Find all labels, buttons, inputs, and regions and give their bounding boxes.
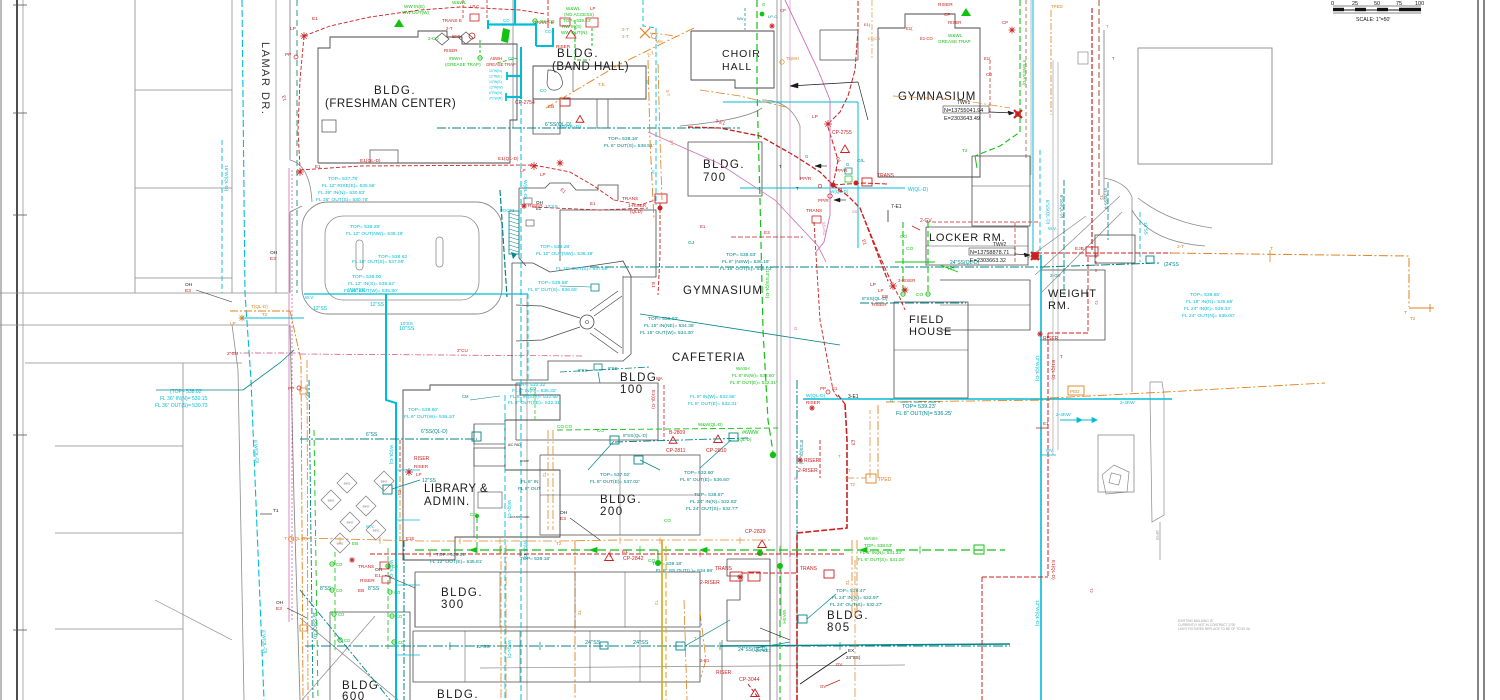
svg-text:(24'SS: (24'SS bbox=[1164, 262, 1180, 268]
svg-text:T2: T2 bbox=[1094, 300, 1099, 305]
svg-text:E1(QL-D): E1(QL-D) bbox=[1051, 360, 1056, 380]
svg-text:E1: E1 bbox=[590, 201, 596, 206]
svg-text:RISER: RISER bbox=[806, 400, 821, 405]
svg-text:BIKE: BIKE bbox=[328, 499, 335, 503]
svg-text:T: T bbox=[848, 468, 851, 473]
svg-text:RISER: RISER bbox=[444, 48, 457, 53]
svg-text:100: 100 bbox=[620, 384, 644, 396]
svg-text:WASH: WASH bbox=[782, 610, 787, 624]
svg-text:RM.: RM. bbox=[1048, 300, 1071, 312]
svg-text:TOP= 539.23': TOP= 539.23' bbox=[902, 404, 936, 410]
svg-text:FL 8" OUT(S)= 536.65': FL 8" OUT(S)= 536.65' bbox=[528, 287, 578, 293]
svg-text:FL 8" OUT(N)= 536.25': FL 8" OUT(N)= 536.25' bbox=[896, 411, 952, 417]
svg-text:E1: E1 bbox=[832, 386, 838, 391]
svg-text:E1: E1 bbox=[622, 549, 628, 555]
svg-text:OH: OH bbox=[270, 250, 278, 256]
svg-text:TOP= 538.29': TOP= 538.29' bbox=[350, 224, 380, 230]
svg-text:100: 100 bbox=[1415, 1, 1424, 7]
svg-text:LIBRARY &: LIBRARY & bbox=[424, 483, 488, 495]
svg-text:10"SS(QL-D): 10"SS(QL-D) bbox=[764, 270, 770, 298]
svg-text:E1: E1 bbox=[397, 490, 402, 496]
svg-text:T1: T1 bbox=[273, 508, 279, 514]
svg-text:FL 10" OUT(S)= 537.69': FL 10" OUT(S)= 537.69' bbox=[352, 259, 404, 265]
svg-text:COMP: COMP bbox=[520, 459, 529, 463]
svg-text:24"SS: 24"SS bbox=[633, 640, 649, 646]
svg-text:RISER: RISER bbox=[556, 44, 571, 49]
svg-text:TOP= 537.78': TOP= 537.78' bbox=[328, 176, 358, 182]
svg-text:18"SS: 18"SS bbox=[1143, 222, 1148, 235]
svg-text:700: 700 bbox=[703, 172, 727, 184]
svg-text:FL 36" OUT(S)= 530.73: FL 36" OUT(S)= 530.73 bbox=[155, 403, 208, 409]
svg-text:WV: WV bbox=[737, 16, 744, 21]
svg-text:FL 8" IN(W)= 532.56': FL 8" IN(W)= 532.56' bbox=[690, 394, 736, 400]
svg-text:WASH: WASH bbox=[864, 536, 878, 541]
svg-text:OH: OH bbox=[560, 510, 568, 516]
svg-text:6"SS(QL-D): 6"SS(QL-D) bbox=[545, 122, 572, 128]
svg-text:CO: CO bbox=[540, 88, 547, 93]
svg-text:T5(MH: T5(MH bbox=[786, 56, 799, 61]
svg-text:TOP= 538.16': TOP= 538.16' bbox=[608, 136, 638, 142]
svg-text:E1(QL-D): E1(QL-D) bbox=[360, 158, 381, 164]
svg-text:25: 25 bbox=[1352, 1, 1358, 7]
svg-text:WV: WV bbox=[1046, 448, 1053, 453]
svg-text:WW IN(E): WW IN(E) bbox=[404, 4, 425, 9]
svg-text:T2: T2 bbox=[1410, 316, 1416, 321]
svg-text:PP/R: PP/R bbox=[800, 176, 812, 182]
svg-text:TOP= 539.58': TOP= 539.58' bbox=[538, 280, 568, 286]
svg-text:E1: E1 bbox=[375, 573, 381, 579]
svg-text:CP: CP bbox=[944, 12, 950, 17]
svg-text:#6WW: #6WW bbox=[742, 430, 759, 436]
svg-text:CO: CO bbox=[916, 292, 923, 298]
svg-text:10"W(S): 10"W(S) bbox=[489, 80, 502, 84]
svg-text:EMH: EMH bbox=[452, 34, 462, 39]
svg-text:FL 15" IN(NE)= 534.36': FL 15" IN(NE)= 534.36' bbox=[644, 323, 695, 329]
svg-text:TOP= 538.03': TOP= 538.03' bbox=[648, 316, 678, 322]
svg-text:CO: CO bbox=[664, 518, 671, 523]
svg-text:24"SS: 24"SS bbox=[585, 640, 601, 646]
svg-text:EX: EX bbox=[848, 648, 854, 653]
svg-text:LP: LP bbox=[870, 282, 876, 288]
svg-text:FH: FH bbox=[948, 266, 955, 272]
svg-text:WA: WA bbox=[656, 376, 663, 381]
svg-text:LP: LP bbox=[590, 6, 595, 11]
svg-text:E1: E1 bbox=[536, 206, 542, 211]
svg-text:600: 600 bbox=[342, 691, 366, 700]
svg-text:FL 36" IN(N)= 530.83': FL 36" IN(N)= 530.83' bbox=[318, 190, 365, 196]
svg-text:TOP= 539.28': TOP= 539.28' bbox=[540, 244, 570, 250]
svg-text:CO: CO bbox=[503, 18, 510, 23]
svg-text:CO: CO bbox=[398, 640, 405, 645]
svg-text:CO: CO bbox=[338, 612, 345, 617]
svg-text:G: G bbox=[805, 154, 808, 159]
svg-text:6"SS: 6"SS bbox=[366, 432, 378, 438]
svg-text:CP-2755: CP-2755 bbox=[832, 130, 852, 136]
svg-text:FL 8" OUT(E)= 532.31': FL 8" OUT(E)= 532.31' bbox=[688, 401, 738, 407]
svg-text:OH: OH bbox=[375, 567, 383, 573]
svg-text:CO CO: CO CO bbox=[557, 424, 572, 429]
svg-text:EB: EB bbox=[352, 541, 358, 546]
svg-text:LP: LP bbox=[540, 172, 546, 177]
svg-text:3-E1: 3-E1 bbox=[848, 394, 859, 400]
svg-text:TPED: TPED bbox=[878, 477, 892, 483]
svg-text:FL 6" OUT(S)= 536.51': FL 6" OUT(S)= 536.51' bbox=[604, 143, 654, 149]
svg-text:E1(CO: E1(CO bbox=[868, 36, 880, 41]
svg-text:8"SS: 8"SS bbox=[368, 586, 380, 592]
svg-text:0: 0 bbox=[1331, 1, 1334, 7]
svg-text:W: W bbox=[651, 170, 656, 174]
svg-text:2-T: 2-T bbox=[1177, 244, 1184, 250]
svg-text:GYMNASIUM: GYMNASIUM bbox=[683, 285, 763, 297]
svg-text:T(QL-D): T(QL-D) bbox=[251, 304, 268, 309]
svg-text:FL 6" OUT(E)= 536.60': FL 6" OUT(E)= 536.60' bbox=[680, 477, 730, 483]
svg-text:W(QL-D): W(QL-D) bbox=[806, 393, 826, 399]
svg-text:FL 12" OUT(NW)= 536.19': FL 12" OUT(NW)= 536.19' bbox=[346, 231, 403, 237]
svg-text:W&WL: W&WL bbox=[566, 6, 581, 11]
svg-text:WASH: WASH bbox=[736, 366, 750, 371]
svg-text:24"SS): 24"SS) bbox=[846, 655, 861, 660]
svg-text:HALL: HALL bbox=[722, 61, 752, 73]
svg-text:TOP= 539.23': TOP= 539.23' bbox=[563, 18, 591, 23]
svg-text:2-E1: 2-E1 bbox=[700, 658, 710, 663]
svg-text:T2: T2 bbox=[850, 482, 856, 487]
svg-text:2-RISER: 2-RISER bbox=[798, 468, 818, 474]
svg-text:12"SS: 12"SS bbox=[370, 302, 385, 308]
svg-text:8"SS(QL-D): 8"SS(QL-D) bbox=[623, 433, 648, 438]
svg-text:CHOIR: CHOIR bbox=[722, 48, 761, 60]
svg-text:CP: CP bbox=[1002, 20, 1008, 25]
svg-text:ADMIN.: ADMIN. bbox=[424, 496, 470, 508]
svg-text:BIKE: BIKE bbox=[373, 529, 380, 533]
svg-text:CO: CO bbox=[597, 428, 604, 433]
svg-text:POC#3: POC#3 bbox=[500, 208, 515, 213]
svg-text:FL 6" OUT(W)= 536.10': FL 6" OUT(W)= 536.10' bbox=[404, 414, 455, 420]
svg-text:12"SS: 12"SS bbox=[313, 306, 328, 312]
svg-text:TRANS: TRANS bbox=[715, 566, 733, 572]
svg-text:PP: PP bbox=[820, 386, 826, 391]
svg-text:T: T bbox=[1060, 354, 1063, 359]
svg-text:BLDG.: BLDG. bbox=[827, 610, 869, 622]
svg-text:#5WH: #5WH bbox=[449, 56, 462, 61]
svg-text:E3: E3 bbox=[764, 230, 770, 235]
svg-text:CO: CO bbox=[344, 638, 351, 643]
svg-text:PP: PP bbox=[288, 386, 294, 392]
svg-text:G: G bbox=[794, 476, 798, 481]
svg-text:FL 18" IN(N)= 535.65': FL 18" IN(N)= 535.65' bbox=[1186, 299, 1233, 305]
svg-text:LP: LP bbox=[812, 114, 818, 120]
svg-text:FL 8" OUT(E)= 532.31': FL 8" OUT(E)= 532.31' bbox=[730, 380, 777, 385]
svg-text:W: W bbox=[645, 80, 650, 84]
svg-text:8'SS: 8'SS bbox=[578, 368, 588, 373]
svg-text:7-E1: 7-E1 bbox=[891, 204, 902, 210]
svg-text:FL 12" OUT(W)= 535.80': FL 12" OUT(W)= 535.80' bbox=[344, 288, 398, 294]
svg-text:CM: CM bbox=[462, 394, 469, 399]
svg-text:TRANS: TRANS bbox=[877, 173, 895, 179]
svg-text:T2: T2 bbox=[1099, 195, 1104, 200]
svg-text:BLDG.: BLDG. bbox=[374, 85, 416, 97]
svg-text:3-RISER: 3-RISER bbox=[898, 278, 915, 283]
svg-text:W.V.: W.V. bbox=[305, 295, 314, 300]
svg-text:TRANS: TRANS bbox=[800, 566, 818, 572]
svg-text:FL 6" IN: FL 6" IN bbox=[521, 479, 539, 485]
svg-text:50: 50 bbox=[1374, 1, 1380, 7]
svg-text:6"FW(N): 6"FW(N) bbox=[489, 91, 502, 95]
svg-text:GV: GV bbox=[836, 662, 842, 667]
svg-text:EJB: EJB bbox=[1075, 246, 1084, 252]
svg-text:FL 12" OUT(NW)= 536.19': FL 12" OUT(NW)= 536.19' bbox=[536, 251, 593, 257]
svg-text:BIKE: BIKE bbox=[344, 482, 351, 486]
svg-text:LP: LP bbox=[520, 168, 526, 173]
svg-text:E1(: E1( bbox=[906, 26, 913, 31]
svg-text:G: G bbox=[794, 326, 798, 331]
svg-text:FIELD: FIELD bbox=[909, 314, 944, 326]
svg-text:CO: CO bbox=[396, 614, 403, 619]
svg-text:FL 8" OUT: FL 8" OUT bbox=[518, 486, 541, 492]
svg-text:E1(QL-D): E1(QL-D) bbox=[1051, 560, 1056, 580]
svg-text:CAFETERIA: CAFETERIA bbox=[672, 352, 746, 364]
svg-text:CP-2754: CP-2754 bbox=[515, 100, 535, 106]
svg-text:12"W(QL-D): 12"W(QL-D) bbox=[1034, 355, 1040, 382]
svg-text:12"SS: 12"SS bbox=[476, 644, 490, 650]
svg-text:W&WL: W&WL bbox=[948, 33, 963, 38]
svg-text:E1: E1 bbox=[1043, 421, 1049, 426]
svg-text:EB: EB bbox=[358, 588, 364, 593]
svg-text:2-4KW: 2-4KW bbox=[1056, 412, 1071, 418]
svg-text:FL 15" OUT(W)= 534.30': FL 15" OUT(W)= 534.30' bbox=[640, 330, 694, 336]
svg-text:CO: CO bbox=[336, 562, 343, 567]
svg-text:GREASE TRAP: GREASE TRAP bbox=[486, 62, 516, 67]
svg-text:CO: CO bbox=[392, 564, 399, 569]
svg-text:RISER: RISER bbox=[948, 20, 961, 25]
svg-text:T: T bbox=[796, 186, 799, 191]
svg-text:805: 805 bbox=[827, 622, 851, 634]
svg-text:FL 8" SS OUT(L)= 534.98': FL 8" SS OUT(L)= 534.98' bbox=[656, 568, 713, 574]
svg-text:TOP= 539.65': TOP= 539.65' bbox=[1190, 292, 1220, 298]
svg-text:RISER: RISER bbox=[360, 578, 375, 584]
svg-text:E1: E1 bbox=[315, 164, 321, 169]
svg-text:T2: T2 bbox=[556, 541, 562, 546]
svg-text:TRANS: TRANS bbox=[806, 208, 822, 214]
svg-text:CP-2829: CP-2829 bbox=[745, 529, 766, 535]
svg-text:2-T: 2-T bbox=[622, 27, 629, 32]
svg-text:12"W(QL-D): 12"W(QL-D) bbox=[1034, 600, 1040, 627]
svg-text:W(QL-D): W(QL-D) bbox=[388, 445, 394, 465]
svg-text:2-T: 2-T bbox=[446, 26, 453, 31]
svg-text:GV: GV bbox=[820, 684, 826, 689]
svg-text:SCALE: 1"=50': SCALE: 1"=50' bbox=[1356, 17, 1390, 23]
svg-text:RISER: RISER bbox=[938, 2, 953, 8]
svg-text:(NO ACCESS): (NO ACCESS) bbox=[564, 12, 594, 17]
svg-text:RISER: RISER bbox=[414, 456, 430, 462]
svg-text:TRANS: TRANS bbox=[622, 196, 638, 202]
svg-text:2-4KW: 2-4KW bbox=[1120, 400, 1135, 406]
svg-text:WW OUT(N): WW OUT(N) bbox=[561, 30, 587, 35]
svg-text:T2: T2 bbox=[962, 148, 968, 154]
svg-text:E3: E3 bbox=[270, 256, 276, 262]
svg-text:6"SS(QL-D): 6"SS(QL-D) bbox=[421, 429, 448, 435]
svg-text:T2: T2 bbox=[845, 580, 850, 586]
svg-text:B-2809: B-2809 bbox=[669, 430, 685, 436]
svg-text:E1-CO: E1-CO bbox=[920, 36, 934, 41]
svg-text:75: 75 bbox=[1396, 1, 1402, 7]
svg-text:FL 8" IN(W)= 532.50': FL 8" IN(W)= 532.50' bbox=[732, 373, 775, 378]
svg-text:18*SS: 18*SS bbox=[1155, 530, 1159, 541]
svg-text:FL 8" IN(SW)= 532.56': FL 8" IN(SW)= 532.56' bbox=[510, 394, 559, 400]
svg-text:12"SS: 12"SS bbox=[422, 478, 437, 484]
svg-text:TOP= 539.47': TOP= 539.47' bbox=[836, 588, 866, 594]
svg-text:W&W(QL-D): W&W(QL-D) bbox=[698, 422, 723, 427]
svg-text:FL 6" OUT(S)= 531.28': FL 6" OUT(S)= 531.28' bbox=[858, 557, 905, 562]
svg-text:E1: E1 bbox=[700, 224, 706, 229]
svg-text:CO: CO bbox=[906, 246, 913, 252]
svg-text:CP-2811: CP-2811 bbox=[666, 448, 686, 454]
svg-text:FL 12" OUT(E)= 535.81': FL 12" OUT(E)= 535.81' bbox=[430, 559, 482, 565]
svg-text:T.E.: T.E. bbox=[598, 82, 606, 87]
svg-text:E1: E1 bbox=[312, 16, 318, 22]
svg-text:FL 6" (NSW)= 536.18': FL 6" (NSW)= 536.18' bbox=[722, 259, 770, 265]
svg-text:T: T bbox=[1404, 310, 1407, 316]
svg-text:G/L: G/L bbox=[857, 158, 865, 164]
svg-text:CP-2842: CP-2842 bbox=[623, 556, 644, 562]
svg-text:BLDG.: BLDG. bbox=[703, 159, 745, 171]
svg-text:RISER: RISER bbox=[804, 458, 820, 464]
svg-text:FL 12" RISE(E)= 535.56': FL 12" RISE(E)= 535.56' bbox=[322, 183, 376, 189]
svg-text:FL 24" IN(N)= 532.82': FL 24" IN(N)= 532.82' bbox=[690, 499, 737, 505]
svg-text:OH: OH bbox=[276, 600, 284, 606]
svg-text:TPED: TPED bbox=[1051, 4, 1063, 9]
svg-text:LP-C: LP-C bbox=[768, 14, 777, 19]
svg-text:FL 24" OUT(S)= 532.27': FL 24" OUT(S)= 532.27' bbox=[830, 602, 882, 608]
svg-text:LP: LP bbox=[416, 472, 422, 477]
svg-text:CO: CO bbox=[986, 72, 993, 77]
svg-text:CP-3044: CP-3044 bbox=[739, 677, 760, 683]
svg-text:TOP= 538.00: TOP= 538.00 bbox=[352, 274, 381, 280]
svg-text:E3: E3 bbox=[560, 516, 566, 522]
svg-text:RW IN(S): RW IN(S) bbox=[562, 24, 582, 29]
svg-text:GJ: GJ bbox=[688, 240, 695, 246]
svg-text:300: 300 bbox=[441, 599, 465, 611]
svg-text:T2: T2 bbox=[262, 312, 268, 317]
svg-text:FL 8" OUT(SE)= 532.31': FL 8" OUT(SE)= 532.31' bbox=[508, 400, 561, 406]
svg-text:FL 24" IN(E)= 535.33': FL 24" IN(E)= 535.33' bbox=[1184, 306, 1231, 312]
svg-text:BIKE: BIKE bbox=[337, 542, 344, 546]
svg-text:(QLD): (QLD) bbox=[630, 209, 643, 214]
svg-text:FL 36" IN(N)= 530.15: FL 36" IN(N)= 530.15 bbox=[160, 396, 208, 402]
svg-text:GREASE TRAP: GREASE TRAP bbox=[938, 39, 971, 44]
svg-text:3-T: 3-T bbox=[669, 140, 675, 147]
svg-text:OH: OH bbox=[185, 282, 193, 288]
svg-text:TRANS E: TRANS E bbox=[534, 20, 554, 25]
svg-text:T: T bbox=[284, 536, 287, 541]
svg-text:(FRESHMAN CENTER): (FRESHMAN CENTER) bbox=[325, 98, 456, 110]
svg-text:W(QL-D): W(QL-D) bbox=[522, 180, 528, 200]
svg-text:2"CU: 2"CU bbox=[457, 348, 468, 353]
svg-text:BLDG.: BLDG. bbox=[441, 587, 483, 599]
svg-text:10"W(N): 10"W(N) bbox=[489, 69, 502, 73]
svg-text:TW#1: TW#1 bbox=[957, 100, 971, 106]
svg-text:12'SS: 12'SS bbox=[545, 204, 559, 210]
svg-text:2-GV: 2-GV bbox=[920, 218, 932, 224]
svg-text:CO: CO bbox=[530, 386, 537, 391]
svg-text:(QL-D): (QL-D) bbox=[738, 437, 752, 442]
svg-text:CO: CO bbox=[394, 590, 401, 595]
svg-text:RISER: RISER bbox=[872, 302, 887, 308]
svg-text:2-GV: 2-GV bbox=[1050, 273, 1062, 278]
svg-text:24*SS1: 24*SS1 bbox=[756, 648, 771, 653]
svg-text:T2: T2 bbox=[1089, 588, 1094, 593]
svg-text:2"CU: 2"CU bbox=[227, 351, 239, 357]
svg-text:T2: T2 bbox=[542, 472, 547, 478]
svg-text:E1(QL-D): E1(QL-D) bbox=[498, 156, 519, 162]
svg-text:PP: PP bbox=[285, 52, 291, 57]
svg-text:E1E: E1E bbox=[406, 536, 414, 541]
svg-text:TOP= 532.60': TOP= 532.60' bbox=[684, 470, 714, 476]
svg-text:TRANS: TRANS bbox=[358, 564, 374, 570]
svg-text:(GREASE TRAP): (GREASE TRAP) bbox=[445, 62, 481, 67]
svg-text:FL 8" OUT(E)= 537.02': FL 8" OUT(E)= 537.02' bbox=[590, 479, 640, 485]
svg-text:TOP= 538.03': TOP= 538.03' bbox=[726, 252, 756, 258]
svg-text:E3: E3 bbox=[276, 606, 282, 612]
svg-text:RISER: RISER bbox=[414, 464, 429, 469]
svg-text:COURT YARD: COURT YARD bbox=[510, 515, 530, 519]
svg-text:12"W(E): 12"W(E) bbox=[489, 75, 502, 79]
svg-text:FL 6" IN(N)= 531.33': FL 6" IN(N)= 531.33' bbox=[860, 550, 902, 555]
svg-text:SS: SS bbox=[852, 209, 858, 214]
svg-text:T: T bbox=[779, 164, 782, 169]
svg-text:LP C: LP C bbox=[470, 4, 479, 9]
svg-text:T2: T2 bbox=[654, 600, 659, 606]
svg-text:A5WH: A5WH bbox=[490, 56, 502, 61]
svg-text:E=2303663.32: E=2303663.32 bbox=[970, 258, 1006, 264]
svg-text:10'SS: 10'SS bbox=[400, 321, 414, 327]
svg-text:FL 36" OUT(S)= 530.78': FL 36" OUT(S)= 530.78' bbox=[316, 197, 368, 203]
svg-text:E1: E1 bbox=[651, 282, 656, 288]
svg-text:FL 12" IN(S)= 535.62': FL 12" IN(S)= 535.62' bbox=[348, 281, 395, 287]
svg-text:G: G bbox=[762, 2, 765, 7]
svg-text:WEIGHT: WEIGHT bbox=[1048, 288, 1097, 300]
svg-text:FL 24" IN(N)= 532.97': FL 24" IN(N)= 532.97' bbox=[832, 595, 879, 601]
svg-text:TOP= 537.02': TOP= 537.02' bbox=[600, 472, 630, 478]
svg-text:TOP= 539.01': TOP= 539.01' bbox=[436, 552, 466, 558]
svg-text:CO: CO bbox=[336, 588, 343, 593]
svg-text:(BAND HALL): (BAND HALL) bbox=[552, 61, 629, 73]
svg-text:BIKE: BIKE bbox=[363, 505, 370, 509]
svg-text:8'SS: 8'SS bbox=[608, 366, 618, 371]
svg-text:16"W(QL-D): 16"W(QL-D) bbox=[223, 165, 229, 192]
svg-text:CO: CO bbox=[648, 558, 655, 564]
svg-text:E=2303643.49: E=2303643.49 bbox=[944, 116, 980, 122]
svg-text:G: G bbox=[846, 162, 849, 167]
svg-text:BIKE: BIKE bbox=[381, 480, 388, 484]
svg-text:FL 24" OUT(S)= 532.77': FL 24" OUT(S)= 532.77' bbox=[686, 506, 738, 512]
svg-text:T: T bbox=[1270, 246, 1273, 252]
svg-text:W&WL: W&WL bbox=[452, 0, 467, 5]
svg-text:FL 10" OUT(S)= 537.69': FL 10" OUT(S)= 537.69' bbox=[556, 266, 608, 272]
svg-text:EB: EB bbox=[882, 294, 888, 299]
svg-text:BLDG.: BLDG. bbox=[437, 689, 479, 700]
svg-text:T(QL-D): T(QL-D) bbox=[290, 536, 307, 541]
svg-text:A/C PAD: A/C PAD bbox=[508, 443, 521, 447]
svg-text:2-CO: 2-CO bbox=[428, 36, 439, 41]
svg-text:T: T bbox=[1112, 56, 1115, 61]
svg-text:LIGHT FIXTURES REPLACE TO BE O: LIGHT FIXTURES REPLACE TO BE OF TO 50 VA bbox=[1178, 627, 1251, 631]
svg-text:W(QL-D): W(QL-D) bbox=[908, 187, 928, 193]
svg-text:PP/R: PP/R bbox=[836, 168, 848, 174]
svg-text:PED: PED bbox=[1070, 389, 1080, 394]
svg-text:CO: CO bbox=[900, 234, 907, 239]
svg-text:LP: LP bbox=[290, 26, 296, 32]
svg-text:2-RISER: 2-RISER bbox=[700, 580, 720, 586]
